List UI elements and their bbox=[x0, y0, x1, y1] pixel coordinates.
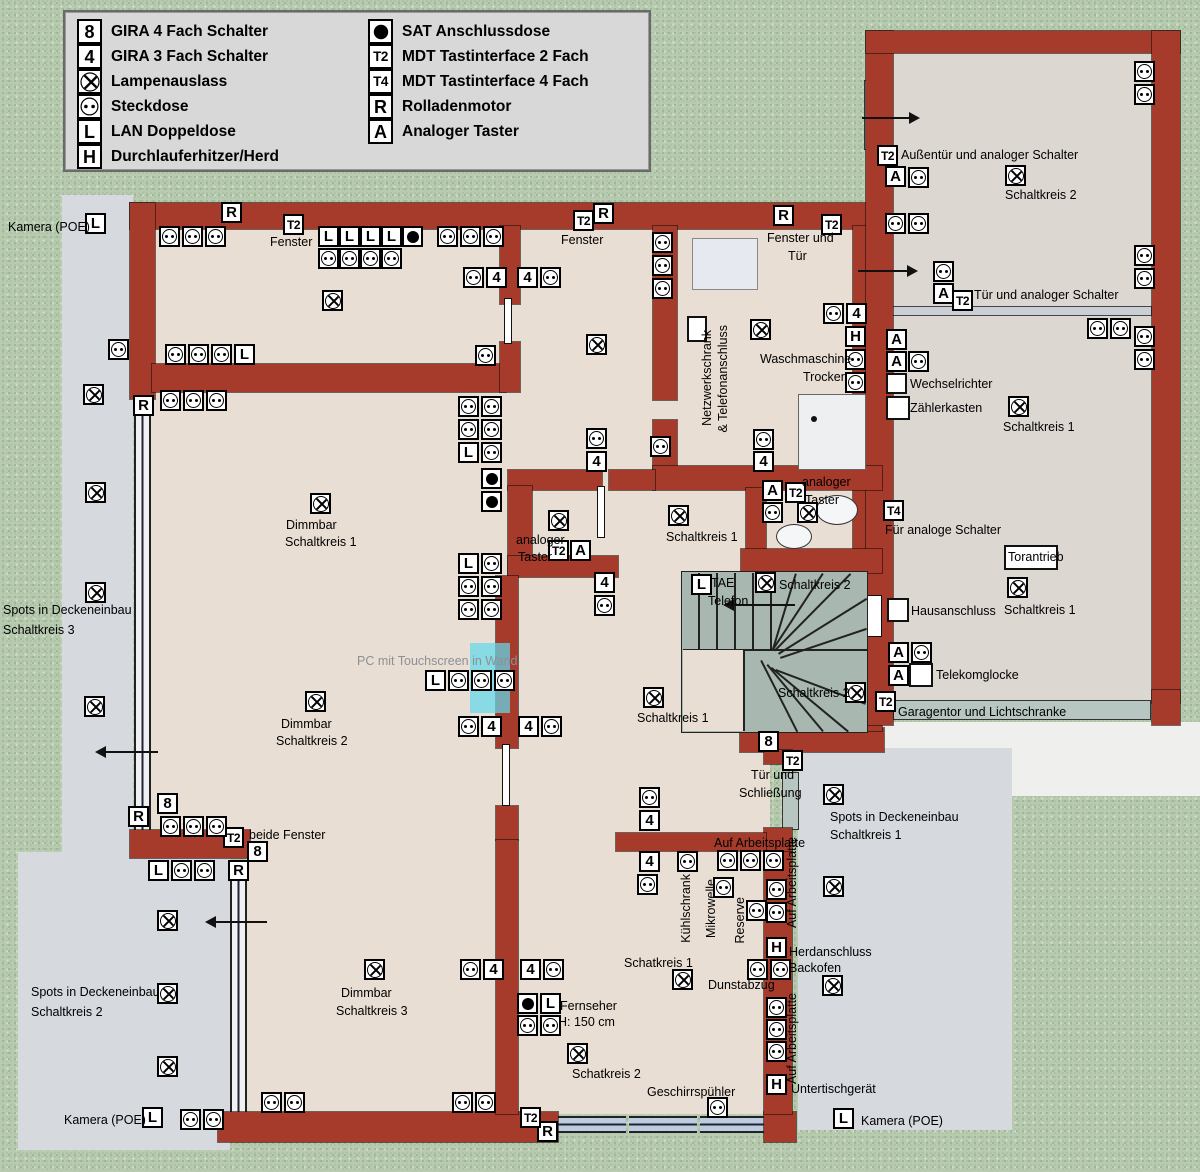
socket-outlet-glyph bbox=[716, 880, 731, 895]
stair-tread bbox=[753, 573, 755, 649]
gira-3fach-switch-icon: 4 bbox=[639, 810, 660, 831]
fixture bbox=[886, 373, 907, 394]
sat-anschlussdose-icon bbox=[481, 491, 502, 512]
legend-item: T4MDT Tastinterface 4 Fach bbox=[368, 69, 589, 94]
gira-3fach-switch-icon: 4 bbox=[639, 851, 660, 872]
stair-tread bbox=[744, 649, 746, 731]
lamp-outlet-icon bbox=[1008, 396, 1029, 417]
plan-label: Herdanschluss bbox=[789, 945, 872, 959]
lan-doppeldose-icon: L bbox=[833, 1108, 854, 1129]
socket-outlet-icon bbox=[908, 213, 929, 234]
legend-item: 4GIRA 3 Fach Schalter bbox=[77, 44, 279, 69]
socket-outlet-glyph bbox=[543, 1018, 558, 1033]
lamp-outlet-glyph bbox=[1008, 168, 1024, 184]
lamp-outlet-icon bbox=[672, 969, 693, 990]
sat-anschlussdose-icon bbox=[402, 226, 423, 247]
mdt-tastinterface-2-icon: T2 bbox=[283, 214, 304, 235]
legend-column: 8GIRA 4 Fach Schalter4GIRA 3 Fach Schalt… bbox=[77, 19, 279, 169]
socket-outlet-glyph bbox=[1137, 248, 1152, 263]
lamp-outlet-glyph bbox=[325, 293, 341, 309]
mdt-tastinterface-2-icon: T2 bbox=[520, 1107, 541, 1128]
analoger-taster-icon: A bbox=[888, 642, 909, 663]
mdt-tastinterface-2-icon: T2 bbox=[573, 210, 594, 231]
socket-outlet-glyph bbox=[455, 1095, 470, 1110]
socket-outlet-glyph bbox=[655, 281, 670, 296]
lamp-outlet-glyph bbox=[758, 575, 774, 591]
socket-outlet-glyph bbox=[914, 645, 929, 660]
sat-anschlussdose-glyph bbox=[373, 24, 387, 38]
lamp-outlet-icon bbox=[823, 876, 844, 897]
socket-outlet-icon bbox=[483, 226, 504, 247]
legend-item-label: SAT Anschlussdose bbox=[402, 23, 550, 41]
plan-label: Wechselrichter bbox=[910, 377, 992, 391]
sat-anschlussdose-glyph bbox=[522, 998, 534, 1010]
plan-label: Dunstabzug bbox=[708, 978, 775, 992]
fixture bbox=[909, 663, 933, 687]
socket-outlet-glyph bbox=[773, 962, 788, 977]
plan-label: Schaltkreis 2 bbox=[778, 686, 850, 700]
plan-label: Für analoge Schalter bbox=[885, 523, 1001, 537]
legend-item-label: LAN Doppeldose bbox=[111, 123, 236, 141]
lan-doppeldose-icon: L bbox=[148, 860, 169, 881]
direction-arrow bbox=[105, 751, 158, 753]
plan-label: Schaltkreis 3 bbox=[336, 1004, 408, 1018]
socket-outlet-glyph bbox=[461, 399, 476, 414]
socket-outlet-glyph bbox=[461, 422, 476, 437]
socket-outlet-glyph bbox=[911, 216, 926, 231]
gira-3fach-switch-icon: 4 bbox=[594, 572, 615, 593]
plan-label: Schaltkreis 2 bbox=[276, 734, 348, 748]
lamp-outlet-glyph bbox=[88, 485, 104, 501]
analoger-taster-icon: A bbox=[933, 283, 954, 304]
gira-3fach-switch-icon: 4 bbox=[753, 451, 774, 472]
mdt-tastinterface-2-icon: T2 bbox=[877, 145, 898, 166]
socket-outlet-icon bbox=[639, 787, 660, 808]
socket-outlet-glyph bbox=[1137, 329, 1152, 344]
plan-label: Trocker bbox=[803, 370, 845, 384]
socket-outlet-glyph bbox=[342, 251, 357, 266]
plan-label: Zählerkasten bbox=[910, 401, 982, 415]
socket-outlet-icon bbox=[458, 419, 479, 440]
lamp-outlet-icon bbox=[823, 784, 844, 805]
socket-outlet-glyph bbox=[936, 264, 951, 279]
plan-label: Tür und analoger Schalter bbox=[974, 288, 1119, 302]
mdt-tastinterface-2-icon: T2 bbox=[875, 691, 896, 712]
socket-outlet-glyph bbox=[888, 216, 903, 231]
lamp-outlet-icon bbox=[755, 572, 776, 593]
socket-outlet-glyph bbox=[163, 819, 178, 834]
arrow-head-icon bbox=[907, 265, 918, 277]
plan-label: Schaltkreis 2 bbox=[779, 578, 851, 592]
analoger-taster-icon: A bbox=[762, 480, 783, 501]
socket-outlet-glyph bbox=[206, 1112, 221, 1127]
socket-outlet-icon bbox=[766, 879, 787, 900]
socket-outlet-glyph bbox=[321, 251, 336, 266]
lamp-outlet-icon bbox=[1007, 577, 1028, 598]
socket-outlet-icon bbox=[437, 226, 458, 247]
socket-outlet-glyph bbox=[168, 347, 183, 362]
socket-outlet-glyph bbox=[653, 439, 668, 454]
socket-outlet-glyph bbox=[197, 863, 212, 878]
lamp-outlet-icon bbox=[643, 687, 664, 708]
socket-outlet-glyph bbox=[484, 602, 499, 617]
legend-item-label: Lampenauslass bbox=[111, 73, 227, 91]
socket-outlet-icon bbox=[205, 226, 226, 247]
socket-outlet-icon bbox=[160, 816, 181, 837]
socket-outlet-glyph bbox=[848, 375, 863, 390]
lamp-outlet-glyph bbox=[1010, 580, 1026, 596]
door-leaf bbox=[504, 298, 512, 344]
socket-outlet-icon bbox=[203, 1109, 224, 1130]
legend-item: T2MDT Tastinterface 2 Fach bbox=[368, 44, 589, 69]
lamp-outlet-glyph bbox=[160, 986, 176, 1002]
socket-outlet-icon bbox=[766, 1041, 787, 1062]
socket-outlet-glyph bbox=[750, 962, 765, 977]
socket-outlet-icon bbox=[677, 851, 698, 872]
lamp-outlet-icon bbox=[157, 910, 178, 931]
lan-doppeldose-icon: L bbox=[458, 553, 479, 574]
socket-outlet-glyph bbox=[1113, 321, 1128, 336]
lamp-outlet-glyph bbox=[87, 699, 103, 715]
lamp-outlet-glyph bbox=[589, 337, 605, 353]
lan-doppeldose-icon: L bbox=[458, 442, 479, 463]
wall bbox=[741, 549, 882, 573]
durchlauferhitzer-herd-icon: H bbox=[77, 144, 102, 169]
lamp-outlet-icon bbox=[586, 334, 607, 355]
gira-3fach-switch-icon: 4 bbox=[486, 267, 507, 288]
socket-outlet-glyph bbox=[191, 347, 206, 362]
socket-outlet-icon bbox=[933, 261, 954, 282]
socket-outlet-glyph bbox=[520, 1018, 535, 1033]
socket-outlet-icon bbox=[1134, 349, 1155, 370]
socket-outlet-icon bbox=[652, 278, 673, 299]
door-leaf bbox=[597, 486, 605, 538]
lan-doppeldose-icon: L bbox=[318, 226, 339, 247]
analoger-taster-icon: A bbox=[886, 351, 907, 372]
socket-outlet-icon bbox=[746, 900, 767, 921]
gira-3fach-switch-icon: 4 bbox=[77, 44, 102, 69]
plan-label: Fenster bbox=[270, 235, 312, 249]
socket-outlet-glyph bbox=[769, 1000, 784, 1015]
stair-tread bbox=[735, 573, 737, 649]
lamp-outlet-glyph bbox=[88, 585, 104, 601]
socket-outlet-icon bbox=[652, 255, 673, 276]
sat-anschlussdose-icon bbox=[481, 468, 502, 489]
socket-outlet-glyph bbox=[461, 719, 476, 734]
plan-label: Tür und bbox=[751, 768, 794, 782]
lamp-outlet-glyph bbox=[646, 690, 662, 706]
lamp-outlet-glyph bbox=[86, 387, 102, 403]
lamp-outlet-glyph bbox=[826, 787, 842, 803]
plan-label: Backofen bbox=[789, 961, 841, 975]
plan-label: Geschirrspühler bbox=[647, 1085, 735, 1099]
gira-3fach-switch-icon: 4 bbox=[586, 451, 607, 472]
wall bbox=[866, 31, 1180, 53]
plan-label: & Telefonanschluss bbox=[716, 325, 730, 432]
socket-outlet-icon bbox=[211, 344, 232, 365]
plan-label: analoger bbox=[802, 475, 851, 489]
plan-label: Garagentor und Lichtschranke bbox=[898, 705, 1066, 719]
wall bbox=[500, 342, 520, 392]
socket-outlet-icon bbox=[766, 902, 787, 923]
lamp-outlet-icon bbox=[157, 1056, 178, 1077]
socket-outlet-icon bbox=[1134, 245, 1155, 266]
legend-item-label: GIRA 4 Fach Schalter bbox=[111, 23, 268, 41]
plan-label: Waschmaschine bbox=[760, 352, 851, 366]
socket-outlet-glyph bbox=[484, 422, 499, 437]
sat-anschlussdose-glyph bbox=[486, 473, 498, 485]
socket-outlet-glyph bbox=[451, 673, 466, 688]
lamp-outlet-glyph bbox=[308, 694, 324, 710]
socket-outlet-glyph bbox=[185, 229, 200, 244]
socket-outlet-icon bbox=[458, 576, 479, 597]
socket-outlet-glyph bbox=[826, 306, 841, 321]
socket-outlet-icon bbox=[637, 874, 658, 895]
legend-item: AAnaloger Taster bbox=[368, 119, 589, 144]
sat-anschlussdose-icon bbox=[517, 993, 538, 1014]
socket-outlet-glyph bbox=[484, 399, 499, 414]
direction-arrow bbox=[215, 921, 267, 923]
socket-outlet-icon bbox=[1134, 268, 1155, 289]
lamp-outlet-icon bbox=[750, 319, 771, 340]
socket-outlet-icon bbox=[823, 303, 844, 324]
plan-label: Schaltkreis 1 bbox=[637, 711, 709, 725]
lamp-outlet-glyph bbox=[1011, 399, 1027, 415]
lamp-outlet-icon bbox=[548, 510, 569, 531]
window bbox=[134, 410, 151, 832]
legend-item-label: GIRA 3 Fach Schalter bbox=[111, 48, 268, 66]
socket-outlet-icon bbox=[284, 1092, 305, 1113]
plan-label: Schatkreis 1 bbox=[624, 956, 693, 970]
lamp-outlet-icon bbox=[84, 696, 105, 717]
arrow-head-icon bbox=[909, 112, 920, 124]
socket-outlet-glyph bbox=[208, 229, 223, 244]
wall bbox=[1152, 690, 1180, 725]
lamp-outlet-icon bbox=[322, 290, 343, 311]
socket-outlet-glyph bbox=[911, 354, 926, 369]
socket-outlet-glyph bbox=[769, 1022, 784, 1037]
fixture bbox=[692, 238, 758, 290]
socket-outlet-glyph bbox=[440, 229, 455, 244]
socket-outlet-icon bbox=[885, 213, 906, 234]
socket-outlet-glyph bbox=[1090, 321, 1105, 336]
plan-label: Kamera (POE) bbox=[64, 1113, 146, 1127]
socket-outlet-glyph bbox=[264, 1095, 279, 1110]
socket-outlet-icon bbox=[908, 351, 929, 372]
legend-item: SAT Anschlussdose bbox=[368, 19, 589, 44]
plan-label: Schaltkreis 2 bbox=[1005, 188, 1077, 202]
lan-doppeldose-icon: L bbox=[381, 226, 402, 247]
gira-3fach-switch-icon: 4 bbox=[846, 303, 867, 324]
socket-outlet-icon bbox=[517, 1015, 538, 1036]
plan-label: Schaltkreis 1 bbox=[1004, 603, 1076, 617]
analoger-taster-icon: A bbox=[570, 540, 591, 561]
durchlauferhitzer-herd-icon: H bbox=[766, 937, 787, 958]
lamp-outlet-glyph bbox=[160, 1059, 176, 1075]
plan-label: Dimmbar bbox=[341, 986, 392, 1000]
sat-anschlussdose-glyph bbox=[407, 231, 419, 243]
socket-outlet-icon bbox=[753, 429, 774, 450]
socket-outlet-icon bbox=[471, 670, 492, 691]
plan-label: Fenster und bbox=[767, 231, 834, 245]
fixture bbox=[798, 394, 866, 470]
mdt-tastinterface-4-icon: T4 bbox=[883, 500, 904, 521]
socket-outlet-icon bbox=[763, 850, 784, 871]
socket-outlet-icon bbox=[318, 248, 339, 269]
plan-label: Schaltkreis 1 bbox=[1003, 420, 1075, 434]
socket-outlet-icon bbox=[165, 344, 186, 365]
socket-outlet-glyph bbox=[1137, 64, 1152, 79]
rolladenmotor-icon: R bbox=[133, 395, 154, 416]
lan-doppeldose-icon: L bbox=[77, 119, 102, 144]
legend-item-label: MDT Tastinterface 2 Fach bbox=[402, 48, 589, 66]
socket-outlet-icon bbox=[77, 94, 102, 119]
fixture bbox=[811, 416, 817, 422]
socket-outlet-icon bbox=[108, 339, 129, 360]
lamp-outlet-icon bbox=[1005, 165, 1026, 186]
thin-wall bbox=[888, 306, 1152, 316]
plan-label: Fernseher bbox=[560, 999, 617, 1013]
socket-outlet-icon bbox=[381, 248, 402, 269]
rolladenmotor-icon: R bbox=[593, 203, 614, 224]
socket-outlet-glyph bbox=[710, 1100, 725, 1115]
socket-outlet-icon bbox=[481, 576, 502, 597]
socket-outlet-icon bbox=[261, 1092, 282, 1113]
socket-outlet-icon bbox=[188, 344, 209, 365]
socket-outlet-glyph bbox=[484, 579, 499, 594]
socket-outlet-icon bbox=[707, 1097, 728, 1118]
sat-anschlussdose-icon bbox=[368, 19, 393, 44]
direction-arrow bbox=[858, 270, 908, 272]
socket-outlet-icon bbox=[339, 248, 360, 269]
socket-outlet-icon bbox=[481, 396, 502, 417]
socket-outlet-icon bbox=[206, 816, 227, 837]
socket-outlet-icon bbox=[481, 599, 502, 620]
socket-outlet-icon bbox=[180, 1109, 201, 1130]
plan-label: H: 150 cm bbox=[558, 1015, 615, 1029]
plan-label: beide Fenster bbox=[249, 828, 325, 842]
lan-doppeldose-icon: L bbox=[425, 670, 446, 691]
socket-outlet-glyph bbox=[162, 229, 177, 244]
plan-label: Schließung bbox=[739, 786, 802, 800]
analoger-taster-icon: A bbox=[885, 166, 906, 187]
gira-4fach-switch-icon: 8 bbox=[77, 19, 102, 44]
mdt-tastinterface-4-icon: T4 bbox=[368, 69, 393, 94]
durchlauferhitzer-herd-icon: H bbox=[845, 326, 866, 347]
window bbox=[629, 1116, 697, 1133]
lamp-outlet-icon bbox=[85, 482, 106, 503]
socket-outlet-glyph bbox=[766, 853, 781, 868]
socket-outlet-icon bbox=[717, 850, 738, 871]
socket-outlet-glyph bbox=[486, 229, 501, 244]
socket-outlet-icon bbox=[1134, 61, 1155, 82]
lamp-outlet-icon bbox=[822, 975, 843, 996]
socket-outlet-icon bbox=[650, 436, 671, 457]
legend-item-label: MDT Tastinterface 4 Fach bbox=[402, 73, 589, 91]
plan-label: Fenster bbox=[561, 233, 603, 247]
socket-outlet-icon bbox=[481, 553, 502, 574]
sat-anschlussdose-glyph bbox=[486, 496, 498, 508]
legend-item-label: Rolladenmotor bbox=[402, 98, 511, 116]
socket-outlet-icon bbox=[770, 959, 791, 980]
mdt-tastinterface-2-icon: T2 bbox=[368, 44, 393, 69]
lan-doppeldose-icon: L bbox=[540, 993, 561, 1014]
plan-label: Spots in Deckeneinbau bbox=[3, 603, 132, 617]
socket-outlet-icon bbox=[448, 670, 469, 691]
socket-outlet-glyph bbox=[911, 170, 926, 185]
gira-3fach-switch-icon: 4 bbox=[517, 267, 538, 288]
rolladenmotor-icon: R bbox=[773, 205, 794, 226]
lamp-outlet-icon bbox=[668, 505, 689, 526]
socket-outlet-glyph bbox=[769, 905, 784, 920]
lamp-outlet-icon bbox=[77, 69, 102, 94]
rolladenmotor-icon: R bbox=[368, 94, 393, 119]
lamp-outlet-glyph bbox=[671, 508, 687, 524]
plan-label: analoger bbox=[516, 533, 565, 547]
socket-outlet-glyph bbox=[186, 819, 201, 834]
socket-outlet-glyph bbox=[749, 903, 764, 918]
fixture bbox=[886, 396, 910, 420]
lan-doppeldose-icon: L bbox=[339, 226, 360, 247]
plan-label: Schaltkreis 1 bbox=[285, 535, 357, 549]
lamp-outlet-glyph bbox=[675, 972, 691, 988]
wall bbox=[496, 806, 518, 840]
socket-outlet-icon bbox=[458, 716, 479, 737]
socket-outlet-glyph bbox=[765, 505, 780, 520]
lan-doppeldose-icon: L bbox=[360, 226, 381, 247]
plan-label: TAE bbox=[711, 576, 734, 590]
socket-outlet-icon bbox=[747, 959, 768, 980]
socket-outlet-icon bbox=[543, 959, 564, 980]
socket-outlet-glyph bbox=[546, 962, 561, 977]
socket-outlet-glyph bbox=[769, 882, 784, 897]
socket-outlet-glyph bbox=[478, 1095, 493, 1110]
socket-outlet-glyph bbox=[463, 229, 478, 244]
lamp-outlet-glyph bbox=[826, 879, 842, 895]
plan-label: Schaltkreis 1 bbox=[666, 530, 738, 544]
socket-outlet-glyph bbox=[655, 258, 670, 273]
socket-outlet-icon bbox=[1087, 318, 1108, 339]
lamp-outlet-glyph bbox=[313, 496, 329, 512]
wall bbox=[1152, 31, 1180, 703]
plan-label: Reserve bbox=[733, 897, 747, 944]
socket-outlet-icon bbox=[766, 997, 787, 1018]
legend-item: Lampenauslass bbox=[77, 69, 279, 94]
socket-outlet-glyph bbox=[287, 1095, 302, 1110]
lamp-outlet-icon bbox=[85, 582, 106, 603]
plan-label: Auf Arbeitsplatte bbox=[785, 993, 799, 1084]
rolladenmotor-icon: R bbox=[128, 806, 149, 827]
rolladenmotor-icon: R bbox=[221, 202, 242, 223]
arrow-head-icon bbox=[95, 746, 106, 758]
socket-outlet-icon bbox=[206, 390, 227, 411]
plan-label: Telefon bbox=[708, 594, 748, 608]
socket-outlet-icon bbox=[908, 167, 929, 188]
plan-label: Kühlschrank bbox=[679, 874, 693, 943]
socket-outlet-glyph bbox=[597, 598, 612, 613]
window bbox=[700, 1116, 764, 1133]
legend-item: RRolladenmotor bbox=[368, 94, 589, 119]
socket-outlet-icon bbox=[541, 716, 562, 737]
lamp-outlet-glyph bbox=[825, 978, 841, 994]
socket-outlet-icon bbox=[452, 1092, 473, 1113]
lamp-outlet-icon bbox=[157, 983, 178, 1004]
socket-outlet-glyph bbox=[183, 1112, 198, 1127]
socket-outlet-icon bbox=[845, 372, 866, 393]
plan-label: Kamera (POE) bbox=[8, 220, 90, 234]
lamp-outlet-glyph bbox=[570, 1046, 586, 1062]
legend-item: Steckdose bbox=[77, 94, 279, 119]
